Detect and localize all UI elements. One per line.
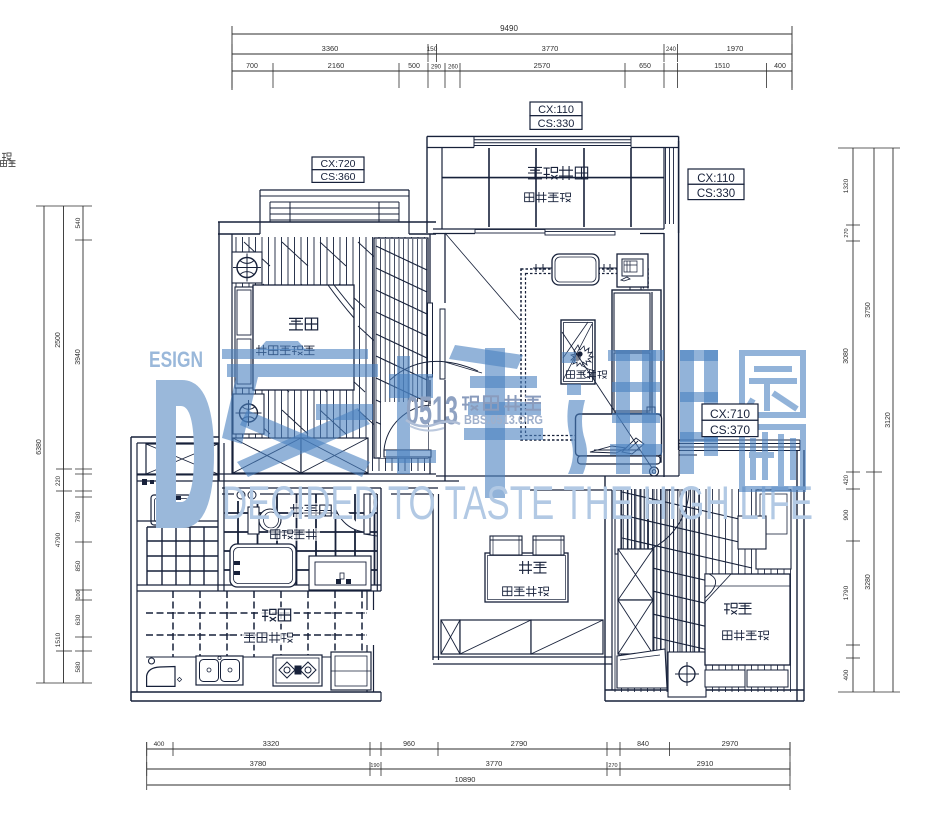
svg-text:2790: 2790: [511, 739, 528, 748]
svg-text:CX:110: CX:110: [697, 173, 735, 185]
svg-text:270: 270: [608, 763, 617, 769]
svg-text:BBS.0513.ORG: BBS.0513.ORG: [464, 413, 543, 427]
svg-text:3320: 3320: [263, 739, 280, 748]
svg-text:9490: 9490: [500, 24, 518, 33]
svg-text:4790: 4790: [55, 532, 62, 547]
svg-text:CS:370: CS:370: [710, 423, 750, 437]
svg-text:420: 420: [844, 474, 850, 485]
svg-text:3750: 3750: [865, 302, 872, 318]
svg-text:1510: 1510: [55, 632, 62, 647]
svg-text:840: 840: [637, 741, 649, 748]
svg-text:3770: 3770: [542, 44, 559, 53]
svg-text:CX:720: CX:720: [320, 158, 355, 170]
svg-text:3940: 3940: [75, 349, 82, 365]
svg-text:3770: 3770: [486, 759, 503, 768]
svg-text:CS:330: CS:330: [697, 188, 735, 200]
svg-text:270: 270: [844, 228, 850, 237]
svg-text:500: 500: [408, 63, 420, 70]
svg-text:900: 900: [843, 509, 850, 520]
svg-text:3120: 3120: [885, 412, 892, 428]
svg-text:ESIGN: ESIGN: [149, 347, 203, 372]
svg-text:190: 190: [370, 763, 379, 769]
svg-text:2160: 2160: [328, 61, 345, 70]
svg-text:3360: 3360: [322, 44, 339, 53]
svg-text:2500: 2500: [55, 332, 62, 348]
svg-text:850: 850: [75, 560, 82, 571]
svg-text:2910: 2910: [697, 759, 714, 768]
svg-text:3780: 3780: [250, 759, 267, 768]
svg-text:240: 240: [666, 47, 677, 53]
svg-text:CS:360: CS:360: [320, 171, 355, 183]
svg-text:400: 400: [154, 741, 165, 748]
svg-text:630: 630: [75, 614, 82, 625]
svg-text:700: 700: [246, 63, 258, 70]
svg-text:400: 400: [843, 669, 850, 680]
svg-text:3080: 3080: [843, 348, 850, 364]
svg-text:100: 100: [76, 590, 82, 599]
svg-text:CX:110: CX:110: [538, 104, 574, 116]
svg-text:960: 960: [403, 741, 415, 748]
svg-text:3280: 3280: [865, 574, 872, 590]
svg-text:10890: 10890: [455, 775, 476, 784]
svg-text:1790: 1790: [843, 585, 850, 600]
svg-text:1970: 1970: [727, 44, 744, 53]
svg-text:400: 400: [774, 63, 786, 70]
svg-text:DECIDED TO TASTE THE HIGH LIFE: DECIDED TO TASTE THE HIGH LIFE: [222, 476, 813, 529]
svg-text:220: 220: [56, 475, 62, 486]
svg-text:260: 260: [448, 65, 459, 71]
svg-text:580: 580: [75, 661, 82, 672]
svg-text:290: 290: [431, 65, 442, 71]
svg-text:6380: 6380: [36, 439, 43, 455]
svg-text:1320: 1320: [843, 178, 850, 193]
svg-text:540: 540: [75, 217, 82, 228]
svg-text:780: 780: [75, 511, 82, 522]
svg-text:650: 650: [639, 63, 651, 70]
svg-text:CS:330: CS:330: [538, 118, 575, 130]
svg-text:150: 150: [427, 46, 438, 53]
svg-text:1510: 1510: [714, 63, 730, 70]
svg-text:2570: 2570: [534, 61, 551, 70]
svg-text:CX:710: CX:710: [710, 407, 750, 421]
svg-text:2970: 2970: [722, 739, 739, 748]
